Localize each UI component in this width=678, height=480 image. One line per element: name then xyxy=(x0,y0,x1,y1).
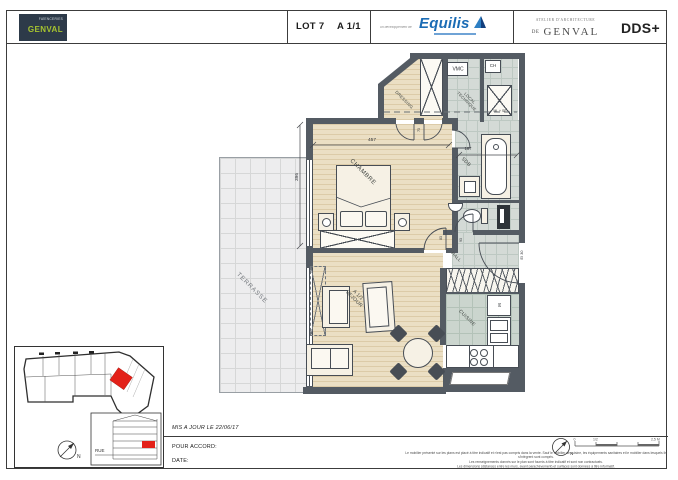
hall-closet xyxy=(446,268,519,294)
kitchen-window xyxy=(450,372,511,385)
terrasse-floor xyxy=(219,157,307,393)
lamp-right-icon xyxy=(398,218,407,227)
wall-wc-hall-a xyxy=(443,230,455,235)
wall-kitchen-bottom xyxy=(443,368,525,392)
updated-label: MIS A JOUR LE 22/06/17 xyxy=(172,425,239,431)
dim-187: 187 xyxy=(464,147,471,152)
lot-label: LOT 7 xyxy=(296,21,324,32)
sofa-top-seat xyxy=(329,290,348,324)
wall-chambre-top-b xyxy=(414,118,424,124)
fridge-bottom xyxy=(490,333,508,343)
pillow-right xyxy=(365,211,387,227)
date-label: DATE: xyxy=(172,458,189,464)
scale-end-label: 2,5 M xyxy=(651,438,660,442)
burner-3 xyxy=(470,358,478,366)
keyplan-building xyxy=(24,351,154,420)
label-vmc: VMC xyxy=(452,66,463,72)
architect-brand: DDS+ xyxy=(621,20,660,36)
sheet-label: A 1/1 xyxy=(337,21,361,32)
developer-prefix: un développement de xyxy=(380,26,412,29)
project-logo: FAÏENCERIES GENVAL xyxy=(19,14,67,41)
sofa-bottom-seat xyxy=(311,348,349,369)
bathtub xyxy=(481,134,511,199)
keyplan-north-label: N xyxy=(77,454,81,460)
sofa-mid-seat xyxy=(367,286,390,327)
section-unit-highlight xyxy=(142,441,155,448)
header-band-bottom-line xyxy=(6,43,667,44)
burner-4 xyxy=(480,358,488,366)
sofa-cushion-divider xyxy=(330,349,331,368)
door-tag-93: 93 xyxy=(459,238,463,242)
wall-sejour-bottom xyxy=(303,387,446,394)
keyplan-box: N RUE xyxy=(14,346,164,468)
disclaimer-line-1: Le mobilier présenté sur les plans est p… xyxy=(404,451,668,460)
keyplan-section-inset: RUE xyxy=(91,413,161,465)
chambre-window xyxy=(306,160,313,246)
scale-bar: 0 1/2 2,5 M xyxy=(572,437,664,450)
dim-457: 457 xyxy=(368,137,376,142)
header-divider-3 xyxy=(513,11,514,43)
dining-table xyxy=(403,338,433,368)
fridge-top xyxy=(490,320,508,331)
architect-name-block: ATELIER D'ARCHITECTURE DE GENVAL xyxy=(516,16,615,40)
counter-divider-2 xyxy=(493,346,494,367)
dim-396: 396 xyxy=(294,173,299,181)
scale-zero-label: 0 xyxy=(574,438,576,442)
header-divider-1 xyxy=(287,11,288,43)
wall-top xyxy=(410,53,525,59)
project-logo-name: GENVAL xyxy=(19,25,63,34)
approval-label: POUR ACCORD: xyxy=(172,444,217,450)
label-ch: CH xyxy=(490,64,497,69)
lamp-left-icon xyxy=(322,218,331,227)
keyplan-north-arrow-icon: N xyxy=(58,441,81,460)
disclaimer-line-3: Les dimensions (distances entre les murs… xyxy=(404,465,668,470)
sofa-mid xyxy=(362,281,395,333)
wall-chambre-right-a xyxy=(452,118,458,130)
equilis-sail-icon xyxy=(473,15,487,29)
architect-name: GENVAL xyxy=(543,26,599,38)
nightstand-left xyxy=(318,213,334,231)
sofa-bottom xyxy=(306,344,353,376)
burner-1 xyxy=(470,349,478,357)
burner-2 xyxy=(480,349,488,357)
chambre-wardrobe xyxy=(320,230,395,249)
wall-right-upper xyxy=(519,53,525,243)
door-tag-73: 73 xyxy=(417,128,421,132)
toilet-tank xyxy=(481,208,488,224)
keyplan-drawing: N RUE xyxy=(15,347,163,467)
disclaimer-text: Le mobilier présenté sur les plans est p… xyxy=(404,451,668,469)
architect-de: DE xyxy=(532,30,540,35)
label-m: M xyxy=(497,303,502,307)
dressing-wardrobe xyxy=(420,58,443,116)
label-ml-se: ML + SE xyxy=(493,109,506,113)
wall-lt-mid xyxy=(480,53,484,122)
wc-cabinet-slot xyxy=(500,209,504,223)
keyplan-rue-label: RUE xyxy=(95,448,105,453)
architect-line1: ATELIER D'ARCHITECTURE xyxy=(536,18,595,22)
wall-chambre-sejour-a xyxy=(306,248,424,253)
architect-block: ATELIER D'ARCHITECTURE DE GENVAL DDS+ xyxy=(516,13,660,43)
wc-cabinet xyxy=(497,205,510,229)
header-divider-2 xyxy=(370,11,371,43)
equilis-tagline-rule xyxy=(434,33,476,35)
sdb-vanity xyxy=(459,176,480,197)
developer-wordmark: Equilis xyxy=(419,15,470,32)
nightstand-right xyxy=(394,213,410,231)
door-tag-83: 83 xyxy=(439,236,443,240)
project-logo-top: FAÏENCERIES xyxy=(39,18,63,21)
label-ei30: EI 30 xyxy=(520,251,524,260)
wall-sdb-wc xyxy=(458,200,519,203)
fridge xyxy=(487,317,511,346)
toilet-bowl xyxy=(463,209,481,223)
wall-wc-hall-b xyxy=(473,230,519,235)
sdb-sink xyxy=(464,181,476,193)
wall-right-lower xyxy=(519,283,525,372)
scale-mid-label: 1/2 xyxy=(593,438,598,442)
bathtub-drain-icon xyxy=(493,144,499,150)
pillow-left xyxy=(340,211,363,227)
wall-dressing-left xyxy=(378,84,384,124)
architect-line2: DE GENVAL xyxy=(516,22,615,40)
